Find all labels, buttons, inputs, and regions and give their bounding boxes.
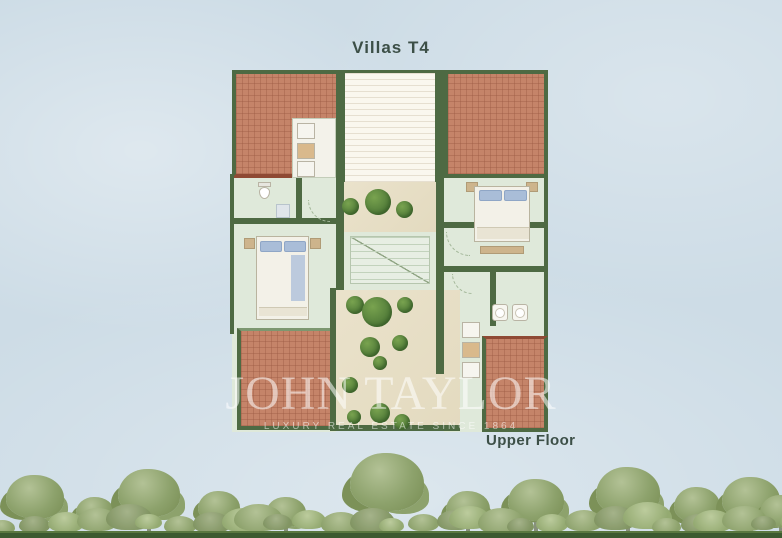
bed	[474, 186, 530, 242]
tree-icon	[362, 297, 392, 327]
wall-segment	[336, 70, 344, 290]
bed-foot-band	[477, 227, 529, 239]
pillow	[284, 241, 306, 252]
tree-canopy	[6, 475, 64, 519]
pillow	[260, 241, 282, 252]
tree-icon	[396, 201, 413, 218]
wall-segment	[436, 70, 444, 290]
pillow	[479, 190, 502, 201]
villa-floorplan-image: Villas T4	[0, 0, 782, 538]
bedroom-left	[244, 234, 322, 330]
cabinet	[462, 342, 480, 358]
bathroom-sink	[512, 304, 528, 321]
wall-segment	[296, 178, 302, 222]
wall-segment	[230, 174, 234, 334]
tree-icon	[360, 337, 380, 357]
watermark-brand: JOHN TAYLOR	[0, 366, 782, 421]
watermark-tagline: LUXURY REAL ESTATE SINCE 1864	[0, 421, 782, 432]
tree-canopy	[350, 453, 424, 511]
bush	[536, 514, 568, 532]
appliance	[297, 143, 315, 159]
bed-bench	[480, 246, 524, 254]
bed-throw	[291, 255, 305, 301]
wall-segment	[436, 288, 444, 374]
laundry-closet	[292, 118, 336, 178]
bush	[408, 514, 439, 531]
bush	[751, 516, 776, 530]
bedroom-right	[466, 182, 540, 258]
toilet	[258, 182, 271, 200]
staircase	[350, 236, 430, 284]
nightstand	[310, 238, 321, 249]
shower	[276, 204, 290, 218]
appliance	[297, 123, 315, 139]
bathroom-sink	[492, 304, 508, 321]
tree-icon	[392, 335, 408, 351]
pillow	[504, 190, 527, 201]
wall-segment	[444, 266, 548, 272]
floor-label: Upper Floor	[486, 432, 575, 449]
ground-strip	[0, 531, 782, 538]
pergola-roof-terrace	[340, 70, 440, 182]
page-title: Villas T4	[0, 38, 782, 58]
appliance	[297, 161, 315, 177]
bush	[263, 514, 292, 530]
nightstand	[244, 238, 255, 249]
wall-segment	[544, 174, 548, 336]
bed-foot-band	[259, 307, 307, 316]
cabinet	[462, 322, 480, 338]
tree-icon	[342, 198, 359, 215]
treeline	[0, 428, 782, 538]
bed	[256, 236, 309, 320]
bush	[135, 514, 162, 529]
tree-icon	[397, 297, 413, 313]
roof-top-right	[444, 70, 548, 178]
bush	[379, 518, 404, 532]
tree-icon	[365, 189, 391, 215]
toilet-bowl	[259, 187, 270, 199]
